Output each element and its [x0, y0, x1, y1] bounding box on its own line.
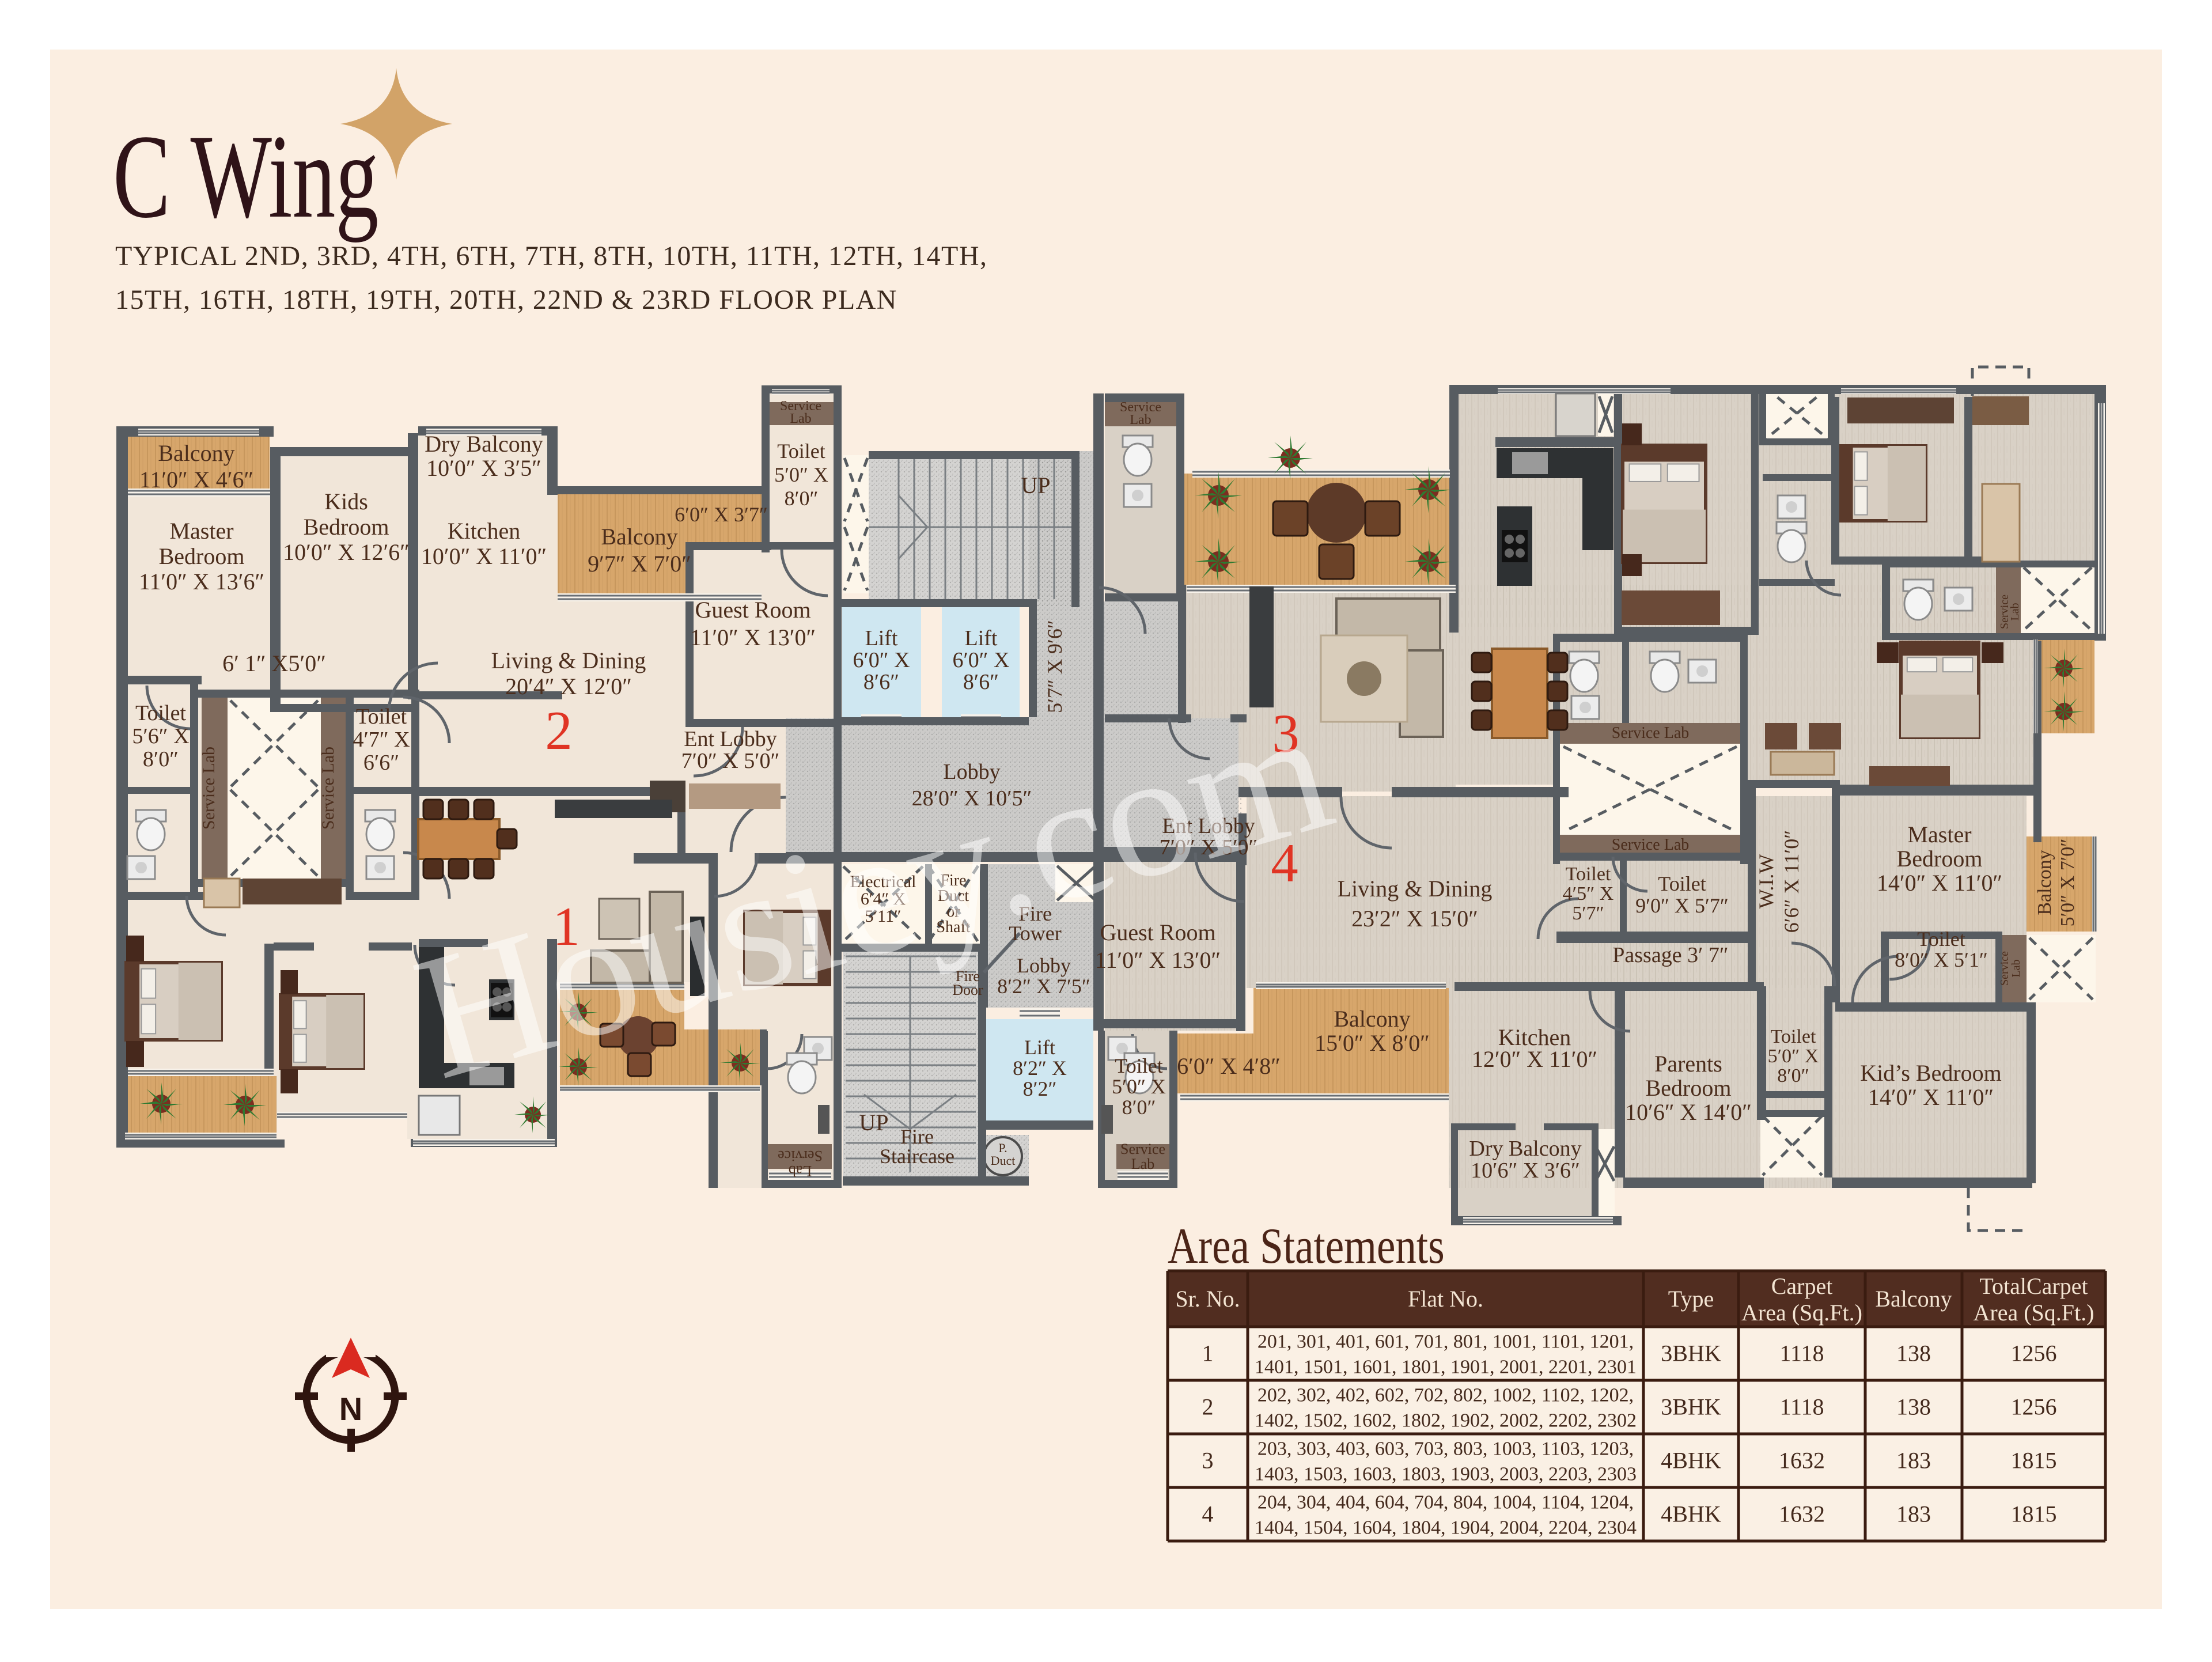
svg-text:1401, 1501, 1601, 1801, 1901,: 1401, 1501, 1601, 1801, 1901, 2001, 2201…: [1255, 1357, 1637, 1378]
svg-text:5′0″ X 7′0″: 5′0″ X 7′0″: [2057, 839, 2078, 927]
svg-text:Toilet: Toilet: [1566, 864, 1611, 885]
svg-text:Service: Service: [1998, 951, 2011, 986]
svg-text:Toilet: Toilet: [1771, 1026, 1816, 1047]
svg-text:9′7″ X 7′0″: 9′7″ X 7′0″: [588, 551, 691, 577]
svg-text:Lab: Lab: [1131, 1156, 1154, 1172]
svg-text:Carpet: Carpet: [1771, 1273, 1833, 1299]
svg-text:Dry Balcony: Dry Balcony: [425, 431, 543, 457]
svg-text:6′ 1″ X5′0″: 6′ 1″ X5′0″: [222, 650, 326, 676]
svg-text:Bedroom: Bedroom: [1646, 1075, 1732, 1101]
svg-text:1118: 1118: [1779, 1341, 1824, 1366]
svg-text:Master: Master: [1907, 821, 1971, 847]
svg-text:1404, 1504, 1604, 1804, 1904,: 1404, 1504, 1604, 1804, 1904, 2004, 2204…: [1255, 1517, 1637, 1539]
svg-text:1118: 1118: [1779, 1394, 1824, 1420]
svg-text:7′0″ X 5′0″: 7′0″ X 5′0″: [681, 749, 780, 773]
svg-text:N: N: [339, 1391, 362, 1427]
svg-text:3BHK: 3BHK: [1661, 1394, 1721, 1420]
svg-text:Living & Dining: Living & Dining: [1338, 876, 1493, 902]
svg-text:2: 2: [545, 700, 573, 761]
svg-text:TYPICAL 2ND, 3RD, 4TH, 6TH, 7T: TYPICAL 2ND, 3RD, 4TH, 6TH, 7TH, 8TH, 10…: [115, 241, 987, 271]
svg-text:6′0″ X 4′8″: 6′0″ X 4′8″: [1177, 1053, 1281, 1079]
svg-text:5′0″ X: 5′0″ X: [1768, 1046, 1819, 1067]
svg-text:8′6″: 8′6″: [963, 670, 999, 694]
svg-text:Service Lab: Service Lab: [319, 747, 338, 830]
svg-text:8′2″: 8′2″: [1023, 1077, 1057, 1100]
svg-text:1632: 1632: [1779, 1448, 1825, 1474]
svg-text:Lab: Lab: [1130, 412, 1151, 427]
svg-text:Service Lab: Service Lab: [1612, 836, 1690, 854]
svg-text:5′0″ X: 5′0″ X: [1112, 1075, 1166, 1098]
svg-text:Dry Balcony: Dry Balcony: [1469, 1137, 1581, 1161]
svg-text:Lift: Lift: [1024, 1036, 1055, 1059]
svg-text:14′0″ X 11′0″: 14′0″ X 11′0″: [1868, 1084, 1994, 1110]
svg-text:2: 2: [1202, 1394, 1214, 1420]
svg-text:Lobby: Lobby: [1017, 954, 1071, 977]
svg-text:Lab: Lab: [2010, 959, 2022, 977]
svg-text:1256: 1256: [2011, 1341, 2057, 1366]
svg-text:Service: Service: [1120, 1141, 1165, 1157]
svg-text:10′0″ X 3′5″: 10′0″ X 3′5″: [426, 455, 541, 481]
svg-text:4BHK: 4BHK: [1661, 1501, 1721, 1527]
svg-text:8′2″ X 7′5″: 8′2″ X 7′5″: [997, 975, 1090, 998]
svg-text:3BHK: 3BHK: [1661, 1341, 1721, 1366]
svg-text:Parents: Parents: [1654, 1051, 1722, 1077]
svg-text:8′0″: 8′0″: [143, 747, 179, 771]
svg-text:Door: Door: [952, 982, 983, 998]
svg-text:Staircase: Staircase: [880, 1145, 955, 1168]
svg-text:15TH, 16TH, 18TH, 19TH, 20TH,: 15TH, 16TH, 18TH, 19TH, 20TH, 22ND & 23R…: [115, 285, 897, 315]
svg-text:Balcony: Balcony: [158, 440, 234, 466]
svg-text:183: 183: [1896, 1501, 1931, 1527]
svg-text:Kitchen: Kitchen: [448, 518, 521, 544]
svg-text:1815: 1815: [2011, 1501, 2057, 1527]
svg-text:W.I.W: W.I.W: [1755, 854, 1778, 909]
svg-text:Area (Sq.Ft.): Area (Sq.Ft.): [1974, 1300, 2094, 1326]
svg-text:201, 301, 401, 601, 701, 801,: 201, 301, 401, 601, 701, 801, 1001, 1101…: [1257, 1331, 1634, 1353]
svg-text:1403, 1503, 1603, 1803, 1903,: 1403, 1503, 1603, 1803, 1903, 2003, 2203…: [1255, 1464, 1637, 1485]
svg-text:Toilet: Toilet: [1917, 927, 1965, 951]
svg-text:11′0″ X 13′0″: 11′0″ X 13′0″: [690, 624, 816, 650]
svg-text:Bedroom: Bedroom: [1897, 846, 1983, 872]
svg-text:1632: 1632: [1779, 1501, 1825, 1527]
svg-text:8′0″ X 5′1″: 8′0″ X 5′1″: [1895, 948, 1988, 971]
svg-text:204, 304, 404, 604, 704, 804,: 204, 304, 404, 604, 704, 804, 1004, 1104…: [1257, 1492, 1634, 1513]
svg-text:UP: UP: [859, 1110, 888, 1135]
svg-text:20′4″ X 12′0″: 20′4″ X 12′0″: [505, 673, 632, 699]
svg-text:11′0″ X 13′6″: 11′0″ X 13′6″: [139, 569, 264, 595]
svg-text:1402, 1502, 1602, 1802, 1902,: 1402, 1502, 1602, 1802, 1902, 2002, 2202…: [1255, 1410, 1637, 1432]
svg-text:Guest Room: Guest Room: [695, 597, 810, 623]
svg-text:Toilet: Toilet: [777, 440, 825, 463]
svg-text:UP: UP: [1021, 472, 1050, 498]
svg-text:202, 302, 402, 602, 702, 802,: 202, 302, 402, 602, 702, 802, 1002, 1102…: [1257, 1385, 1634, 1406]
svg-text:Balcony: Balcony: [601, 524, 677, 550]
svg-text:Area Statements: Area Statements: [1168, 1218, 1445, 1274]
svg-text:1815: 1815: [2011, 1448, 2057, 1474]
svg-text:6′0″ X: 6′0″ X: [853, 648, 910, 672]
svg-text:14′0″ X 11′0″: 14′0″ X 11′0″: [1877, 870, 2002, 896]
svg-text:Ent Lobby: Ent Lobby: [684, 727, 777, 751]
svg-text:138: 138: [1896, 1341, 1931, 1366]
svg-text:Master: Master: [169, 518, 233, 544]
svg-text:4BHK: 4BHK: [1661, 1448, 1721, 1474]
svg-text:Bedroom: Bedroom: [159, 543, 245, 569]
svg-text:4′7″ X: 4′7″ X: [353, 728, 410, 752]
svg-text:Duct: Duct: [991, 1153, 1016, 1168]
svg-text:1256: 1256: [2011, 1394, 2057, 1420]
svg-text:Service Lab: Service Lab: [1612, 724, 1690, 742]
svg-text:Sr. No.: Sr. No.: [1175, 1286, 1240, 1312]
svg-text:Flat No.: Flat No.: [1408, 1286, 1483, 1312]
svg-text:Type: Type: [1668, 1286, 1714, 1312]
svg-text:8′0″: 8′0″: [1777, 1065, 1809, 1086]
svg-text:8′6″: 8′6″: [863, 670, 899, 694]
svg-text:Lab: Lab: [2009, 603, 2021, 620]
svg-text:Balcony: Balcony: [1334, 1006, 1410, 1032]
svg-text:Toilet: Toilet: [1658, 872, 1706, 895]
svg-text:6′0″ X: 6′0″ X: [952, 648, 1009, 672]
svg-text:6′0″ X 3′7″: 6′0″ X 3′7″: [675, 503, 768, 526]
svg-text:TotalCarpet: TotalCarpet: [1979, 1273, 2088, 1299]
svg-text:11′0″ X 13′0″: 11′0″ X 13′0″: [1095, 947, 1221, 973]
svg-text:10′0″ X 12′6″: 10′0″ X 12′6″: [283, 539, 410, 565]
svg-text:C Wing: C Wing: [113, 111, 378, 243]
svg-text:6′6″ X 11′0″: 6′6″ X 11′0″: [1780, 830, 1803, 933]
svg-text:10′6″ X 3′6″: 10′6″ X 3′6″: [1471, 1159, 1580, 1183]
svg-text:Lab: Lab: [789, 1163, 812, 1179]
svg-text:138: 138: [1896, 1394, 1931, 1420]
svg-text:Living & Dining: Living & Dining: [491, 648, 646, 673]
svg-text:8′2″ X: 8′2″ X: [1013, 1057, 1067, 1080]
svg-text:Bedroom: Bedroom: [304, 514, 389, 540]
svg-text:8′0″: 8′0″: [785, 487, 819, 510]
svg-text:5′7″: 5′7″: [1572, 903, 1604, 924]
svg-text:1: 1: [1202, 1341, 1214, 1366]
svg-text:3: 3: [1202, 1448, 1214, 1474]
svg-text:5′7″ X 9′6″: 5′7″ X 9′6″: [1043, 620, 1066, 713]
svg-text:23′2″ X 15′0″: 23′2″ X 15′0″: [1351, 906, 1478, 932]
svg-text:5′6″ X: 5′6″ X: [132, 724, 189, 748]
svg-text:Lab: Lab: [790, 411, 811, 426]
svg-text:10′6″ X 14′0″: 10′6″ X 14′0″: [1625, 1099, 1752, 1125]
svg-text:Toilet: Toilet: [356, 705, 407, 729]
svg-text:Kids: Kids: [324, 489, 368, 514]
svg-text:Lift: Lift: [865, 626, 898, 650]
svg-text:12′0″ X 11′0″: 12′0″ X 11′0″: [1472, 1046, 1597, 1072]
svg-text:Service: Service: [778, 1148, 823, 1164]
svg-text:5′0″ X: 5′0″ X: [774, 463, 828, 486]
svg-text:4′5″ X: 4′5″ X: [1563, 883, 1614, 904]
svg-text:Toilet: Toilet: [1115, 1054, 1162, 1077]
svg-text:15′0″ X 8′0″: 15′0″ X 8′0″: [1315, 1030, 1430, 1056]
svg-text:Passage 3′ 7″: Passage 3′ 7″: [1612, 943, 1728, 967]
svg-text:11′0″ X 4′6″: 11′0″ X 4′6″: [139, 467, 253, 493]
svg-text:Service Lab: Service Lab: [199, 747, 218, 830]
svg-text:4: 4: [1202, 1501, 1214, 1527]
svg-text:Balcony: Balcony: [1875, 1286, 1952, 1312]
svg-text:Lift: Lift: [965, 626, 998, 650]
svg-text:9′0″ X 5′7″: 9′0″ X 5′7″: [1635, 894, 1729, 917]
svg-text:6′6″: 6′6″: [363, 751, 399, 775]
svg-text:8′0″: 8′0″: [1122, 1096, 1156, 1119]
svg-text:10′0″ X 11′0″: 10′0″ X 11′0″: [421, 543, 547, 569]
svg-text:183: 183: [1896, 1448, 1931, 1474]
svg-text:Toilet: Toilet: [135, 701, 187, 725]
svg-text:203, 303, 403, 603, 703, 803,: 203, 303, 403, 603, 703, 803, 1003, 1103…: [1257, 1438, 1634, 1460]
svg-text:Balcony: Balcony: [2034, 850, 2055, 915]
svg-text:Kid’s Bedroom: Kid’s Bedroom: [1860, 1060, 2002, 1086]
svg-text:Area (Sq.Ft.): Area (Sq.Ft.): [1741, 1300, 1862, 1326]
